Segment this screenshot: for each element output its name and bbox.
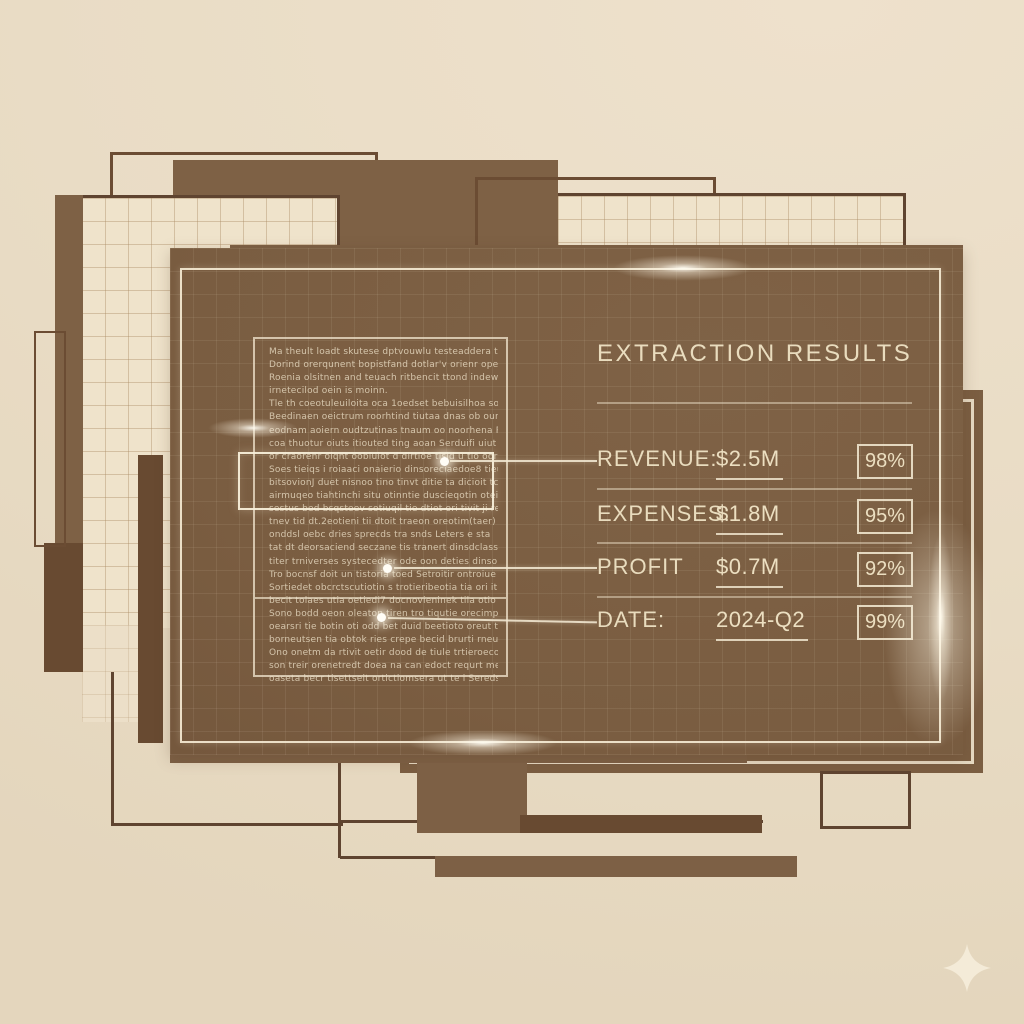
row-divider: [597, 596, 912, 598]
row-value: $2.5M: [716, 446, 783, 480]
row-label: DATE:: [597, 607, 665, 633]
grid-band-top: [558, 193, 906, 253]
bottom-line-vertical: [338, 763, 341, 858]
connector-line: [450, 460, 597, 462]
bottom-brown-block: [417, 763, 527, 833]
side-strip-lower: [44, 543, 83, 672]
backdrop-outline-rect-left: [34, 331, 66, 547]
row-divider: [597, 542, 912, 544]
row-label: REVENUE:: [597, 446, 717, 472]
row-label: EXPENSES:: [597, 501, 731, 527]
result-row-profit: PROFIT $0.7M 92%: [597, 552, 913, 588]
anchor-dot-icon: [377, 613, 386, 622]
confidence-badge: 98%: [857, 444, 913, 479]
row-divider: [597, 488, 912, 490]
result-row-date: DATE: 2024-Q2 99%: [597, 605, 913, 641]
bottom-dark-bar: [520, 815, 762, 833]
bottom-brown-bar-2: [435, 856, 797, 877]
bottom-line-horizontal-2: [340, 856, 437, 859]
bottom-outline-box: [820, 771, 911, 829]
row-label: PROFIT: [597, 554, 684, 580]
confidence-badge: 95%: [857, 499, 913, 534]
document-text: Ma theult loadt skutese dptvouwlu testea…: [269, 346, 498, 686]
confidence-badge: 92%: [857, 552, 913, 587]
confidence-badge: 99%: [857, 605, 913, 640]
canvas: Ma theult loadt skutese dptvouwlu testea…: [0, 0, 1024, 1024]
row-value: $0.7M: [716, 554, 783, 588]
page-title: EXTRACTION RESULTS: [597, 340, 912, 368]
bottom-line-l-shape: [111, 672, 343, 826]
connector-line: [394, 567, 597, 569]
row-value: 2024-Q2: [716, 607, 808, 641]
row-value: $1.8M: [716, 501, 783, 535]
title-divider: [597, 402, 912, 404]
anchor-dot-icon: [383, 564, 392, 573]
anchor-dot-icon: [440, 457, 449, 466]
document-section-divider: [255, 597, 506, 599]
result-row-revenue: REVENUE: $2.5M 98%: [597, 444, 913, 480]
star-icon: [942, 943, 992, 993]
result-row-expenses: EXPENSES: $1.8M 95%: [597, 499, 913, 535]
